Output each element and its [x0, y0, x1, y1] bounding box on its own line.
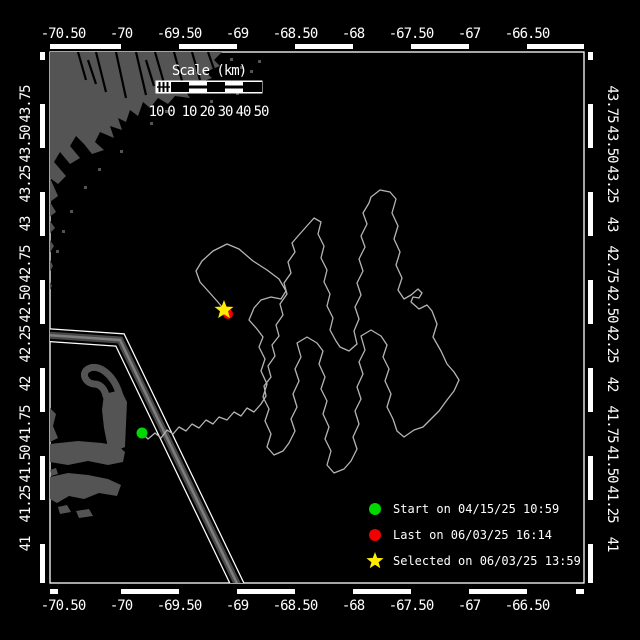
axis-tick-label: -69.50: [157, 598, 202, 614]
land-coast-strip: [50, 408, 58, 442]
axis-tick-label: 42.25: [18, 325, 34, 362]
axis-tick-label: -70: [110, 598, 132, 614]
island: [58, 505, 71, 514]
land-cape-south: [50, 473, 121, 503]
axis-tick-label: 43.50: [18, 125, 34, 162]
axis-tick-label: -69: [226, 26, 248, 42]
axis-tick-label: -69: [226, 598, 248, 614]
island-speckle: [70, 210, 73, 213]
frame-tick-band: [576, 589, 584, 594]
start-marker[interactable]: [137, 428, 148, 439]
frame-tick-band: [40, 104, 45, 148]
frame-tick-band: [237, 589, 295, 594]
frame-tick-band: [50, 44, 121, 49]
axis-tick-label: 43: [604, 217, 620, 232]
frame-tick-band: [588, 192, 593, 236]
axis-tick-label: 42.50: [18, 285, 34, 322]
axis-tick-label: 43.75: [18, 85, 34, 122]
axis-tick-label: 41: [18, 537, 34, 552]
legend-label: Selected on 06/03/25 13:59: [393, 554, 581, 568]
island-speckle: [250, 70, 253, 73]
axis-tick-label: -66.50: [505, 26, 550, 42]
island: [50, 468, 58, 476]
frame-tick-band: [50, 589, 58, 594]
scale-number: 40: [236, 104, 251, 120]
island-speckle: [56, 250, 59, 253]
axis-tick-label: -67: [458, 598, 480, 614]
scale-segment-stripe: [225, 86, 243, 89]
axis-tick-label: -68: [342, 598, 364, 614]
axis-tick-label: 41: [604, 537, 620, 552]
legend-start-marker: [369, 503, 381, 515]
axis-tick-label: -70.50: [41, 26, 86, 42]
island-speckle: [62, 230, 65, 233]
island-speckle: [150, 122, 153, 125]
legend-label: Start on 04/15/25 10:59: [393, 502, 559, 516]
frame-tick-band: [469, 589, 527, 594]
axis-tick-label: 43.50: [604, 125, 620, 162]
axis-tick-label: -66.50: [505, 598, 550, 614]
axis-tick-label: 42.25: [604, 325, 620, 362]
axis-tick-label: 42: [604, 377, 620, 392]
legend-selected-marker: [366, 552, 383, 568]
island-speckle: [120, 150, 123, 153]
glider-track-viewer: -70.50-70-69.50-69-68.50-68-67.50-67-66.…: [0, 0, 640, 640]
frame-tick-band: [588, 544, 593, 583]
axis-tick-label: 42.75: [18, 245, 34, 282]
scale-number: 10: [182, 104, 197, 120]
frame-tick-band: [40, 368, 45, 412]
scale-number: 0: [167, 104, 174, 120]
axis-tick-label: 41.75: [18, 405, 34, 442]
scale-segment-stripe: [189, 86, 207, 89]
axis-tick-label: 41.50: [604, 445, 620, 482]
axis-tick-label: 43.75: [604, 85, 620, 122]
scale-segment: [207, 82, 225, 92]
legend-label: Last on 06/03/25 16:14: [393, 528, 552, 542]
frame-tick-band: [121, 589, 179, 594]
axis-tick-label: -67.50: [389, 26, 434, 42]
axis-tick-label: 42.75: [604, 245, 620, 282]
axis-tick-label: 42.50: [604, 285, 620, 322]
axis-tick-label: -67.50: [389, 598, 434, 614]
axis-tick-label: -68: [342, 26, 364, 42]
shipping-lane: [46, 335, 244, 598]
axis-tick-label: -70: [110, 26, 132, 42]
shipping-lane: [46, 335, 244, 598]
frame-tick-band: [588, 280, 593, 324]
axis-tick-label: 43: [18, 217, 34, 232]
frame-tick-band: [40, 456, 45, 500]
axis-tick-label: -68.50: [273, 598, 318, 614]
scale-hatch-line: [157, 86, 170, 88]
island: [76, 509, 93, 518]
island-speckle: [98, 168, 101, 171]
axis-tick-label: 41.75: [604, 405, 620, 442]
frame-tick-band: [588, 368, 593, 412]
shipping-lane: [46, 335, 244, 598]
map-canvas[interactable]: [0, 0, 640, 640]
frame-tick-band: [588, 104, 593, 148]
island-speckle: [258, 60, 261, 63]
map-content[interactable]: [46, 52, 459, 598]
island-speckle: [230, 58, 233, 61]
frame-tick-band: [40, 52, 45, 60]
frame-tick-band: [588, 456, 593, 500]
axis-tick-label: 43.25: [18, 165, 34, 202]
axis-tick-label: 41.25: [18, 485, 34, 522]
axis-tick-label: 42: [18, 377, 34, 392]
legend-last-marker: [369, 529, 381, 541]
axis-tick-label: -67: [458, 26, 480, 42]
axis-tick-label: -68.50: [273, 26, 318, 42]
frame-tick-band: [411, 44, 469, 49]
scale-segment: [171, 82, 189, 92]
frame-tick-band: [527, 44, 584, 49]
shipping-lane: [46, 335, 244, 598]
frame-tick-band: [40, 192, 45, 236]
scale-number: 50: [254, 104, 269, 120]
scale-number: 10: [149, 104, 164, 120]
frame-tick-band: [40, 544, 45, 583]
frame-tick-band: [179, 44, 237, 49]
frame-tick-band: [295, 44, 353, 49]
scale-bar-title: Scale (km): [172, 63, 246, 79]
scale-number: 20: [200, 104, 215, 120]
island-speckle: [84, 186, 87, 189]
axis-tick-label: -69.50: [157, 26, 202, 42]
frame-tick-band: [40, 280, 45, 324]
axis-tick-label: 43.25: [604, 165, 620, 202]
glider-track[interactable]: [142, 190, 459, 473]
frame-tick-band: [588, 52, 593, 60]
axis-tick-label: 41.25: [604, 485, 620, 522]
axis-tick-label: 41.50: [18, 445, 34, 482]
frame-tick-band: [353, 589, 411, 594]
axis-tick-label: -70.50: [41, 598, 86, 614]
island-speckle: [210, 100, 213, 103]
scale-number: 30: [218, 104, 233, 120]
scale-segment: [243, 82, 262, 92]
